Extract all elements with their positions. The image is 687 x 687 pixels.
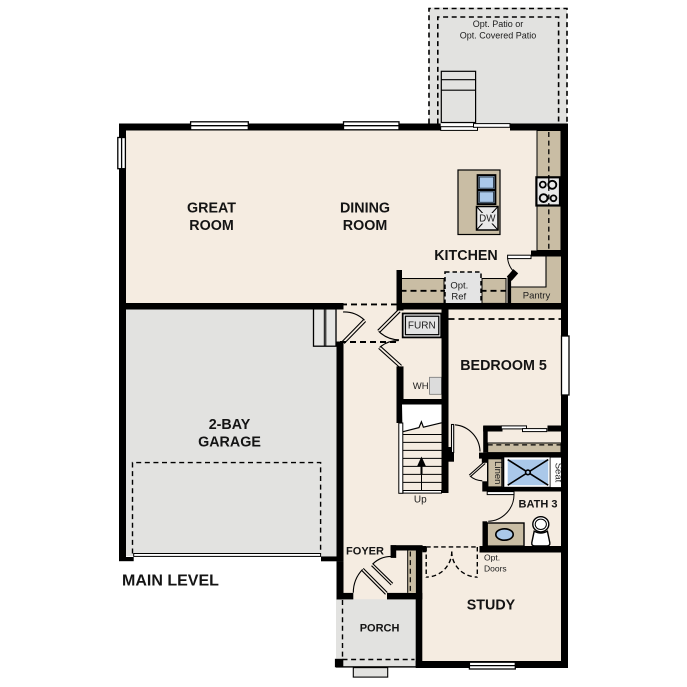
svg-text:Doors: Doors	[484, 564, 507, 574]
svg-text:WH: WH	[413, 381, 429, 392]
svg-text:FOYER: FOYER	[346, 546, 384, 558]
svg-text:Opt. Covered Patio: Opt. Covered Patio	[460, 31, 537, 41]
svg-text:ROOM: ROOM	[343, 218, 387, 234]
svg-text:STUDY: STUDY	[467, 598, 516, 614]
svg-text:KITCHEN: KITCHEN	[434, 248, 498, 264]
svg-text:GREAT: GREAT	[187, 201, 236, 217]
svg-text:Up: Up	[414, 494, 427, 505]
svg-text:PORCH: PORCH	[360, 623, 400, 635]
svg-text:FURN: FURN	[408, 321, 436, 332]
svg-text:GARAGE: GARAGE	[198, 435, 261, 451]
svg-text:Opt. Patio or: Opt. Patio or	[473, 19, 524, 29]
svg-text:BEDROOM 5: BEDROOM 5	[460, 358, 547, 374]
svg-text:Linen: Linen	[492, 461, 503, 484]
svg-text:2-BAY: 2-BAY	[209, 417, 251, 433]
svg-text:Opt.: Opt.	[484, 553, 500, 563]
svg-text:Pantry: Pantry	[523, 290, 551, 301]
svg-text:DINING: DINING	[340, 201, 390, 217]
svg-text:Ref: Ref	[451, 291, 466, 302]
svg-text:Seat: Seat	[553, 463, 564, 483]
svg-text:MAIN LEVEL: MAIN LEVEL	[122, 572, 219, 589]
svg-text:DW: DW	[479, 214, 496, 225]
svg-text:BATH 3: BATH 3	[519, 499, 558, 511]
svg-text:ROOM: ROOM	[189, 218, 233, 234]
svg-text:Opt.: Opt.	[450, 281, 468, 292]
